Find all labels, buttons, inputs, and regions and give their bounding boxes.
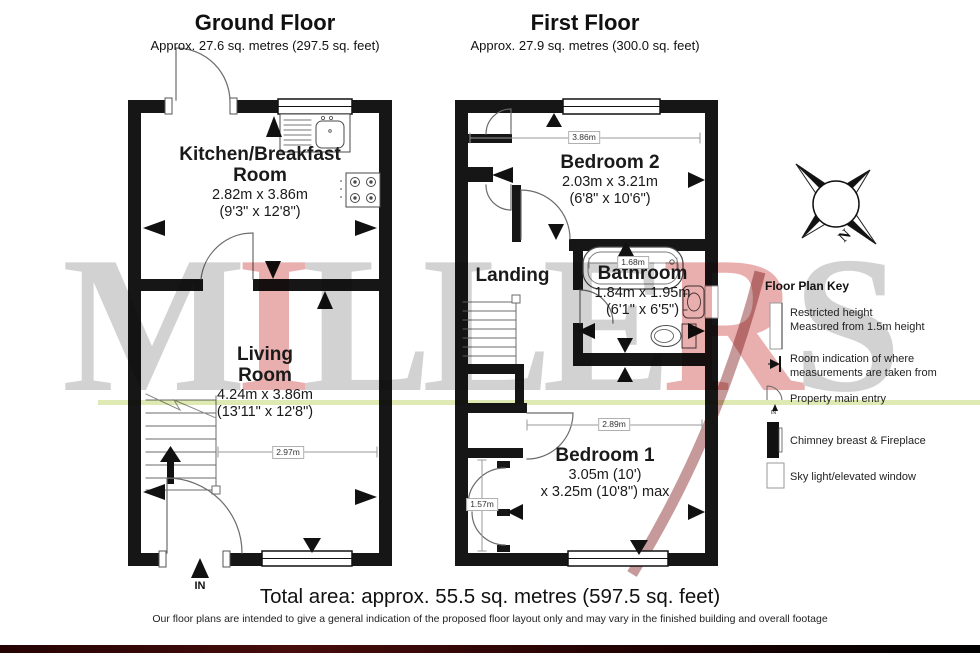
kitchen-hob bbox=[340, 173, 380, 207]
wall bbox=[141, 279, 379, 291]
wardrobe-door-arc bbox=[468, 468, 505, 505]
compass-rose bbox=[796, 164, 876, 244]
wall bbox=[468, 448, 523, 458]
wall bbox=[705, 100, 718, 566]
door-jamb bbox=[165, 98, 172, 114]
wall bbox=[573, 251, 583, 290]
dimension-line bbox=[527, 420, 702, 430]
door-opening bbox=[172, 100, 230, 113]
wall bbox=[468, 364, 515, 374]
door-jamb bbox=[230, 98, 237, 114]
elevated-window bbox=[705, 286, 718, 318]
bedroom1-door-arc bbox=[527, 413, 573, 459]
wall bbox=[573, 353, 718, 366]
bathtub bbox=[583, 247, 683, 289]
door-jamb bbox=[159, 551, 166, 567]
entry-door-arc bbox=[167, 478, 242, 553]
closet-door-arc bbox=[486, 185, 511, 210]
wall bbox=[379, 100, 392, 566]
kitchen-sink bbox=[280, 114, 350, 152]
bathroom-door-arc bbox=[580, 290, 613, 323]
wall bbox=[512, 185, 521, 242]
wall bbox=[497, 545, 510, 552]
highlight-line bbox=[98, 400, 980, 405]
door-opening bbox=[203, 279, 253, 291]
back-door-arc bbox=[176, 48, 230, 102]
floorplan-drawing bbox=[0, 0, 980, 653]
kitchen-door-arc bbox=[201, 233, 253, 279]
wall bbox=[455, 100, 468, 566]
door-jamb bbox=[223, 551, 230, 567]
wall bbox=[573, 323, 583, 353]
door-opening bbox=[165, 553, 223, 566]
dimension-line bbox=[218, 447, 377, 457]
wardrobe-door-arc bbox=[472, 512, 505, 545]
brand-bottom-bar bbox=[0, 645, 980, 653]
floorplan-page: M I L L E R S Ground Floor Approx. 27.6 … bbox=[0, 0, 980, 653]
measurement-markers bbox=[143, 116, 377, 553]
wall bbox=[128, 100, 141, 566]
ground-floor-plan bbox=[128, 48, 392, 578]
chimney-breast bbox=[468, 167, 493, 182]
wash-basin bbox=[683, 286, 704, 318]
stairs bbox=[463, 295, 520, 364]
bedroom2-door-arc bbox=[521, 190, 570, 239]
wall bbox=[497, 461, 510, 468]
